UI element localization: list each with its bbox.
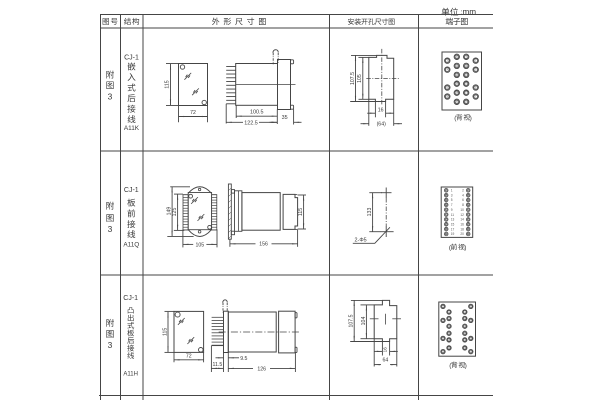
svg-text:3: 3 (108, 224, 113, 234)
svg-text:104: 104 (361, 317, 367, 326)
svg-text:7: 7 (451, 203, 453, 207)
svg-text:4: 4 (462, 193, 464, 197)
svg-text:105: 105 (357, 74, 363, 83)
svg-text:A11Q: A11Q (123, 241, 139, 248)
svg-text:2-Φ5: 2-Φ5 (355, 237, 367, 243)
svg-text:): ) (464, 245, 466, 252)
svg-text:(64): (64) (377, 122, 386, 128)
svg-text:16: 16 (378, 108, 384, 114)
svg-text:9: 9 (451, 208, 453, 212)
svg-text:133: 133 (367, 208, 373, 217)
svg-text:125: 125 (172, 208, 178, 217)
svg-text:72: 72 (190, 110, 196, 116)
svg-text:107.5: 107.5 (349, 314, 355, 327)
svg-text:8: 8 (462, 203, 464, 207)
svg-text:11: 11 (451, 213, 455, 217)
svg-text:16: 16 (383, 347, 388, 353)
svg-text:2: 2 (462, 189, 464, 193)
svg-text:20: 20 (460, 232, 464, 236)
svg-text:CJ-1: CJ-1 (123, 295, 138, 302)
svg-text:14: 14 (460, 218, 464, 222)
svg-text:19: 19 (451, 232, 455, 236)
svg-text:107.5: 107.5 (350, 72, 356, 85)
svg-text:15: 15 (451, 222, 455, 226)
svg-text:CJ-1: CJ-1 (124, 187, 139, 194)
svg-text:5: 5 (451, 198, 453, 202)
svg-text:122.5: 122.5 (244, 120, 258, 126)
svg-text:1: 1 (451, 189, 453, 193)
svg-text:): ) (470, 115, 472, 122)
svg-text:115: 115 (165, 80, 171, 88)
svg-text:A11H: A11H (123, 371, 138, 377)
svg-text:115: 115 (162, 328, 168, 336)
svg-text:105: 105 (195, 242, 204, 248)
svg-text:16: 16 (460, 222, 464, 226)
svg-text:18: 18 (460, 227, 464, 231)
svg-text:3: 3 (108, 340, 113, 350)
svg-text:11.5: 11.5 (213, 362, 223, 368)
svg-text:100.5: 100.5 (250, 110, 264, 116)
svg-text:9.5: 9.5 (240, 356, 247, 362)
svg-text:64: 64 (383, 358, 389, 364)
svg-text:72: 72 (186, 354, 192, 360)
svg-text:): ) (465, 363, 467, 370)
svg-text:156: 156 (259, 242, 268, 248)
svg-text:3: 3 (108, 92, 113, 102)
svg-text:126: 126 (257, 366, 266, 372)
svg-text:115: 115 (298, 208, 304, 216)
svg-text:10: 10 (460, 208, 464, 212)
svg-text:17: 17 (451, 227, 455, 231)
svg-text:12: 12 (460, 213, 464, 217)
svg-text:A11K: A11K (124, 125, 140, 132)
svg-text:6: 6 (462, 198, 464, 202)
svg-text:13: 13 (451, 218, 455, 222)
svg-text:mm: mm (462, 7, 476, 16)
svg-text:CJ-1: CJ-1 (124, 55, 139, 62)
svg-text:35: 35 (282, 115, 288, 121)
svg-text:3: 3 (451, 193, 453, 197)
